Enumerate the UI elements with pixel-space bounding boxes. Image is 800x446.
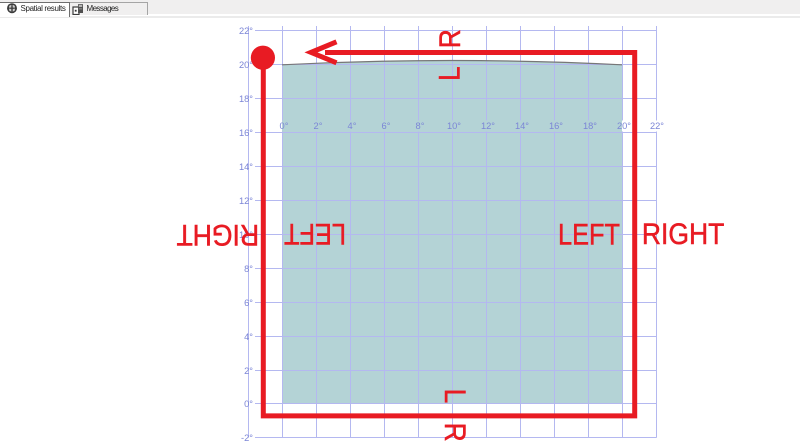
svg-text:20°: 20° xyxy=(239,60,253,70)
svg-text:LEFT: LEFT xyxy=(558,218,620,251)
svg-text:-2°: -2° xyxy=(241,433,253,443)
svg-text:R: R xyxy=(432,29,466,48)
svg-text:18°: 18° xyxy=(583,121,597,131)
svg-text:10°: 10° xyxy=(447,121,461,131)
svg-text:L: L xyxy=(439,389,473,404)
svg-text:R: R xyxy=(439,423,473,442)
svg-text:RIGHT: RIGHT xyxy=(177,218,260,252)
svg-text:20°: 20° xyxy=(617,121,631,131)
svg-text:6°: 6° xyxy=(244,298,253,308)
svg-text:22°: 22° xyxy=(650,121,664,131)
svg-text:L: L xyxy=(432,66,466,81)
svg-text:0°: 0° xyxy=(244,399,253,409)
svg-text:8°: 8° xyxy=(416,121,425,131)
svg-text:RIGHT: RIGHT xyxy=(642,217,725,251)
svg-text:0°: 0° xyxy=(280,121,289,131)
svg-text:6°: 6° xyxy=(382,121,391,131)
svg-text:22°: 22° xyxy=(239,26,253,36)
svg-text:12°: 12° xyxy=(481,121,495,131)
svg-text:14°: 14° xyxy=(515,121,529,131)
svg-text:12°: 12° xyxy=(239,196,253,206)
svg-text:LEFT: LEFT xyxy=(284,218,346,251)
svg-text:2°: 2° xyxy=(244,366,253,376)
svg-text:4°: 4° xyxy=(244,332,253,342)
svg-text:16°: 16° xyxy=(239,128,253,138)
svg-text:8°: 8° xyxy=(244,264,253,274)
svg-text:18°: 18° xyxy=(239,94,253,104)
svg-text:2°: 2° xyxy=(314,121,323,131)
svg-text:14°: 14° xyxy=(239,162,253,172)
svg-text:4°: 4° xyxy=(348,121,357,131)
svg-text:16°: 16° xyxy=(549,121,563,131)
